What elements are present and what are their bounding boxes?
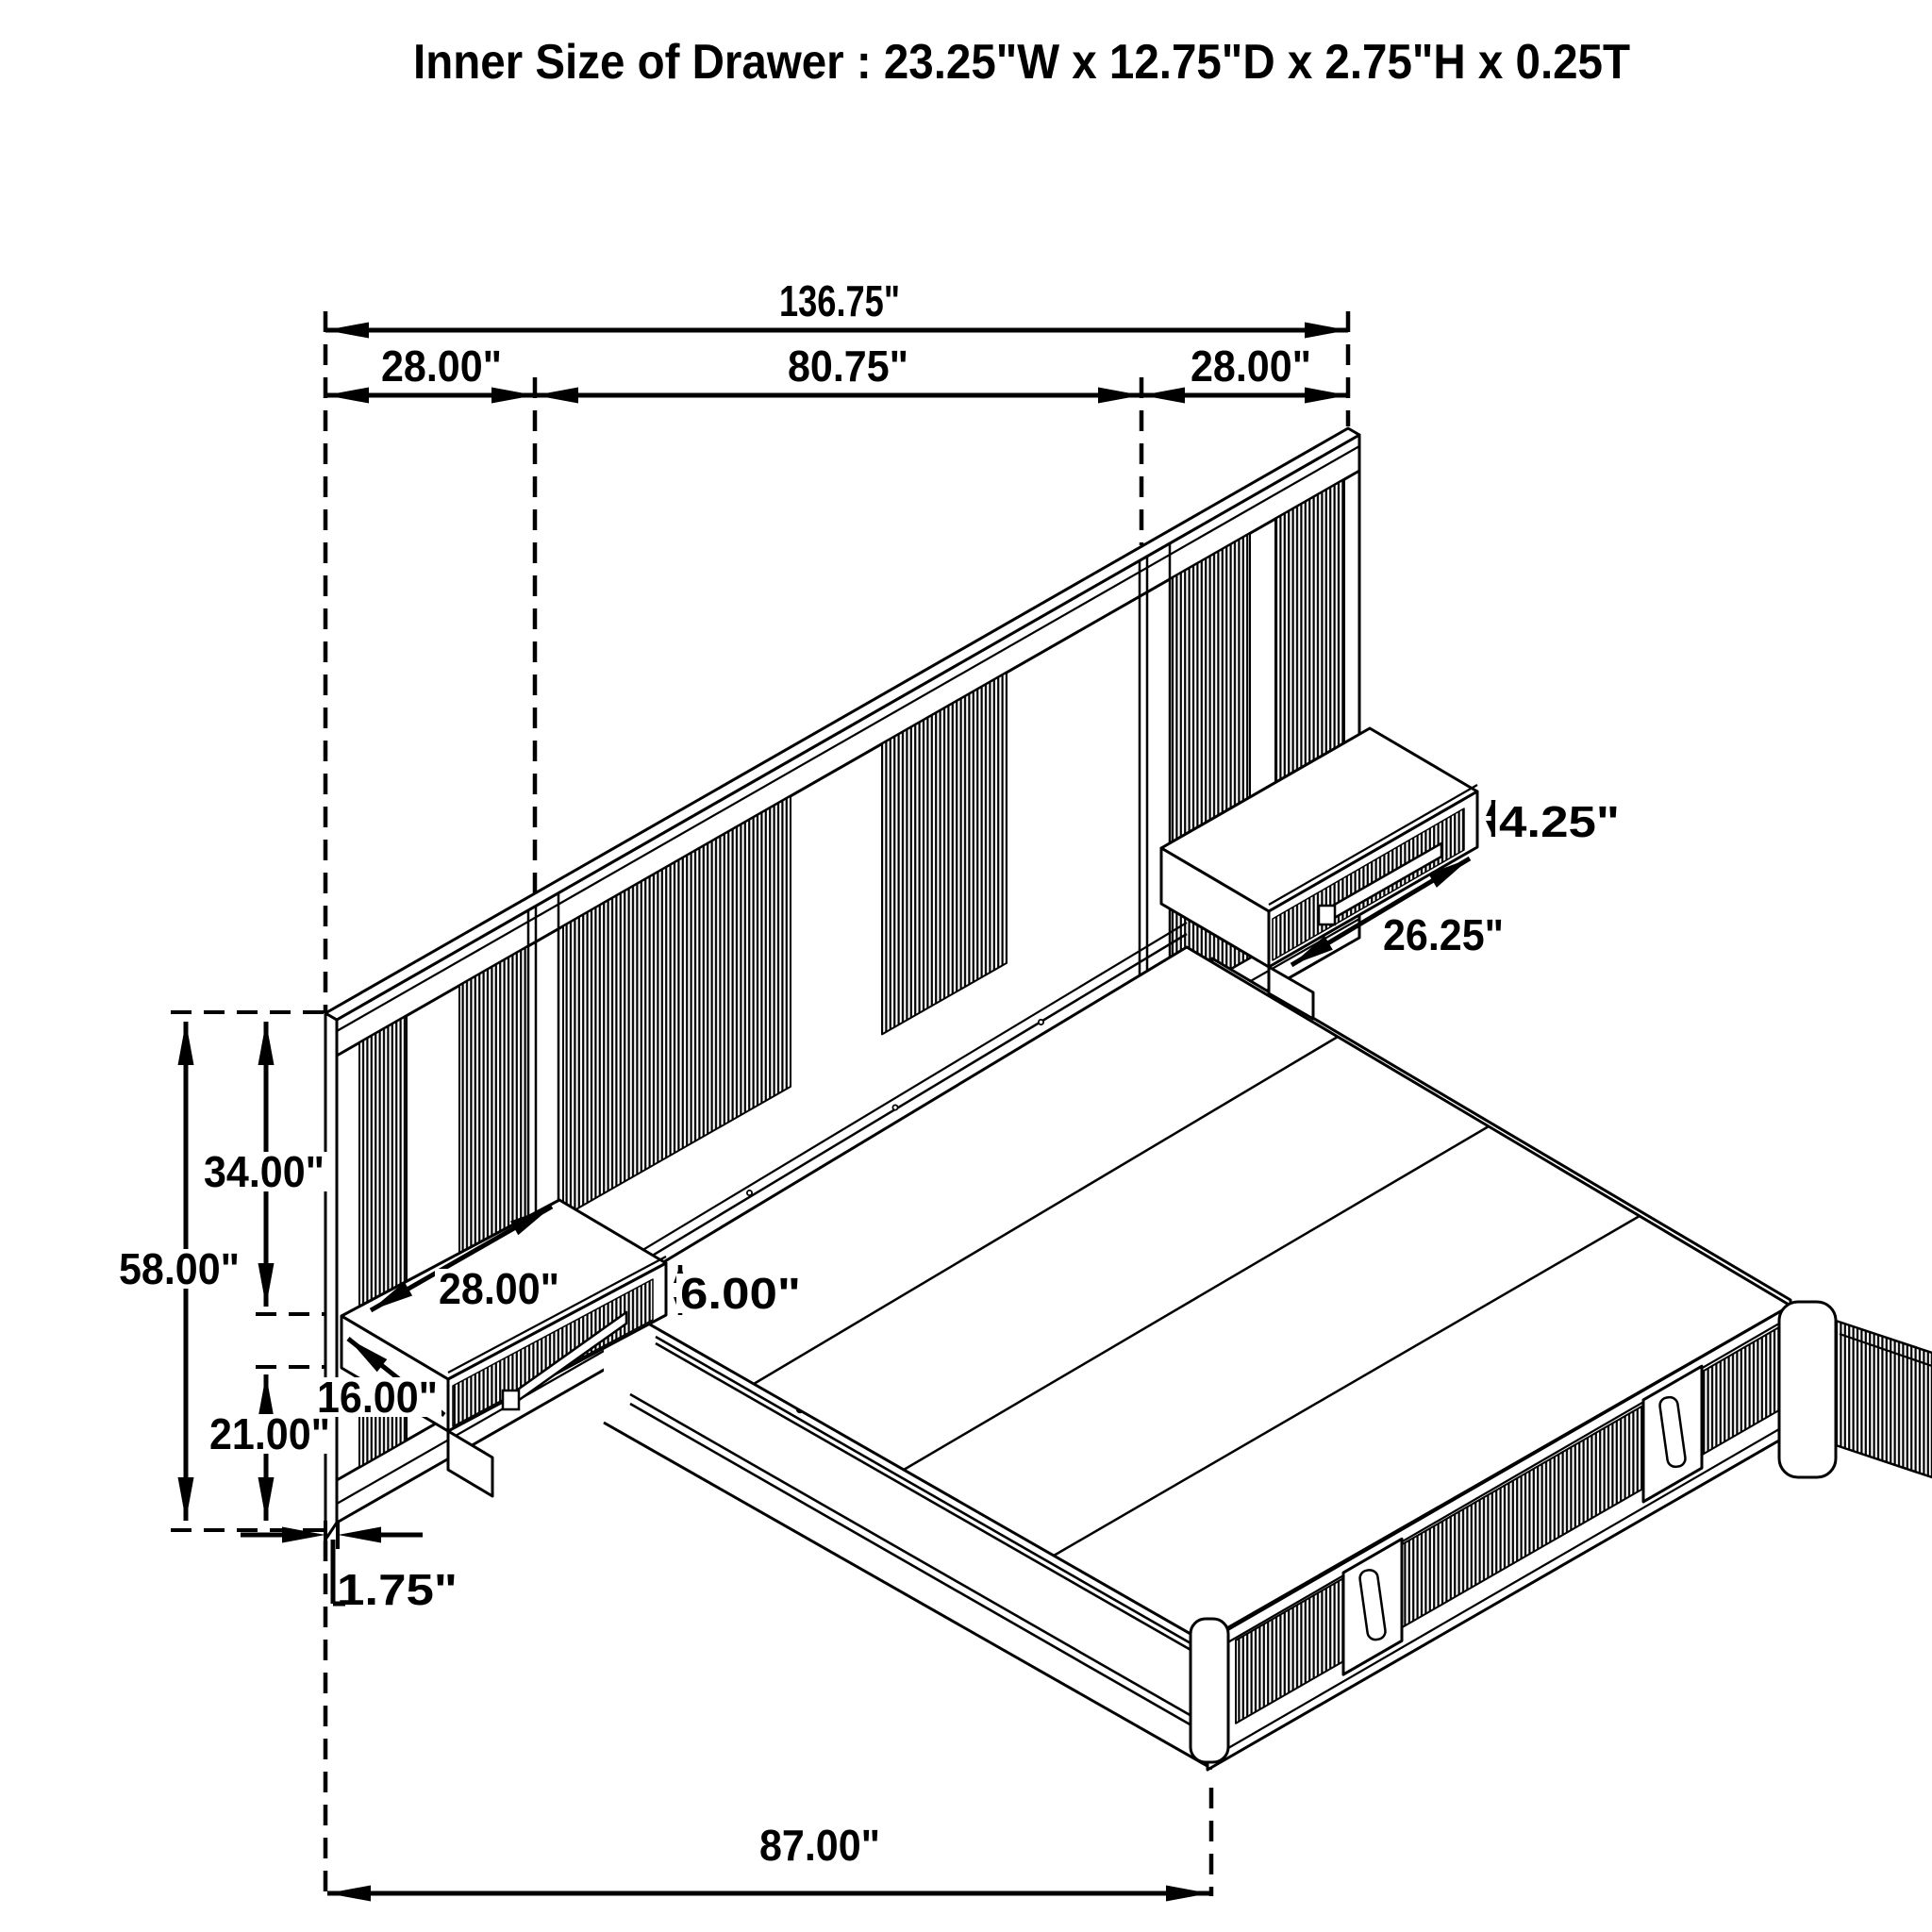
svg-text:26.25": 26.25" — [1383, 910, 1504, 959]
svg-text:28.00": 28.00" — [1191, 341, 1311, 391]
svg-text:58.00": 58.00" — [119, 1244, 240, 1293]
svg-text:80.75": 80.75" — [788, 341, 908, 391]
svg-text:28.00": 28.00" — [439, 1264, 559, 1313]
svg-text:21.00": 21.00" — [209, 1409, 330, 1458]
svg-text:1.75": 1.75" — [337, 1565, 458, 1614]
svg-text:136.75": 136.75" — [779, 276, 900, 325]
svg-text:28.00": 28.00" — [381, 341, 502, 391]
svg-text:6.00": 6.00" — [680, 1269, 801, 1318]
svg-text:4.25": 4.25" — [1499, 797, 1620, 846]
svg-text:87.00": 87.00" — [759, 1821, 880, 1870]
svg-text:Inner Size of Drawer : 23.25"W: Inner Size of Drawer : 23.25"W x 12.75"D… — [413, 35, 1630, 90]
svg-text:16.00": 16.00" — [317, 1373, 438, 1422]
svg-text:34.00": 34.00" — [204, 1147, 325, 1196]
